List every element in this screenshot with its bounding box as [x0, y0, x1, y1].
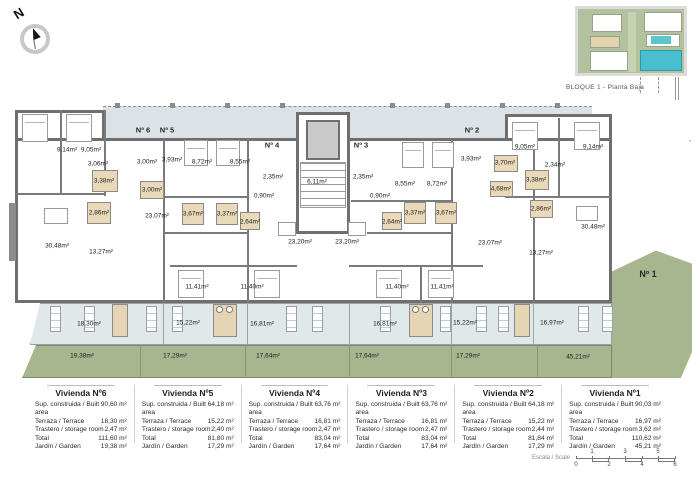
dining-table-symbol: [278, 222, 296, 236]
lounger-symbol: [380, 306, 391, 332]
terrace-area-label: 16,81m²: [250, 321, 274, 328]
table-row: Terraza / Terrace18,30 m²: [35, 418, 127, 426]
scale-tick: [642, 456, 643, 459]
table-row: Sup. construida / Built area90,03 m²: [569, 401, 661, 418]
lounger-symbol: [84, 306, 95, 332]
lounger-symbol: [312, 306, 323, 332]
map-leader-line: [678, 77, 679, 100]
unit-table-title: Vivienda Nº6: [35, 388, 127, 398]
garden-area-label: 17,29m²: [456, 353, 480, 360]
sink-icon: [412, 306, 419, 313]
room-area-label: 9,05m²: [515, 144, 535, 151]
row-label: Total: [249, 435, 263, 443]
unit-table-title: Vivienda Nº1: [569, 388, 661, 398]
table-row: Total83,04 m²: [249, 435, 341, 443]
room-area-label: 3,06m²: [88, 161, 108, 168]
unit-table-n3: Vivienda Nº3 Sup. construida / Built are…: [347, 385, 454, 443]
row-label: Total: [569, 435, 583, 443]
bloque-caption: BLOQUE 1 - Planta Baja: [566, 84, 644, 91]
row-value: 83,04 m²: [314, 435, 340, 443]
room-area-label: 3,67m²: [436, 210, 456, 217]
row-value: 2,40 m²: [211, 426, 233, 434]
row-label: Total: [142, 435, 156, 443]
room-area-label: 3,00m²: [137, 159, 157, 166]
room-area-label: 2,86m²: [89, 210, 109, 217]
room-area-label: 23,07m²: [145, 213, 169, 220]
room-area-label: 23,07m²: [478, 240, 502, 247]
room-area-label: 4,68m²: [491, 186, 511, 193]
unit-table-n2: Vivienda Nº2 Sup. construida / Built are…: [454, 385, 561, 443]
row-value: 64,18 m²: [528, 401, 554, 418]
row-value: 2,44 m²: [532, 426, 554, 434]
row-label: Jardín / Garden: [249, 443, 295, 451]
row-value: 2,47 m²: [318, 426, 340, 434]
partition-wall: [558, 118, 560, 196]
terrace-area-label: 16,81m²: [373, 321, 397, 328]
unit-label-n3: Nº 3: [354, 141, 368, 150]
room-area-label: 2,35m²: [353, 174, 373, 181]
row-label: Terraza / Terrace: [355, 418, 404, 426]
room-area-label: 8,55m²: [395, 181, 415, 188]
partition-wall: [15, 193, 105, 195]
table-row: Terraza / Terrace15,22 m²: [462, 418, 554, 426]
terrace-divider: [533, 303, 534, 345]
row-value: 15,22 m²: [208, 418, 234, 426]
bed-symbol: [66, 114, 92, 142]
table-row: Jardín / Garden17,64 m²: [249, 443, 341, 451]
storage-room: [112, 304, 128, 337]
row-label: Trastero / storage room: [462, 426, 531, 434]
row-value: 64,18 m²: [208, 401, 234, 418]
column-marker: [445, 103, 450, 108]
room-area-label: 9,14m²: [583, 144, 603, 151]
row-value: 16,81 m²: [421, 418, 447, 426]
garden-divider: [245, 345, 246, 378]
row-label: Total: [35, 435, 49, 443]
room-area-label: 11,40m²: [385, 284, 408, 291]
scale-label: Escala / Scale: [532, 455, 570, 461]
table-row: Total81,84 m²: [462, 435, 554, 443]
room-area-label: 2,64m²: [240, 219, 260, 226]
lounger-symbol: [146, 306, 157, 332]
lounger-symbol: [440, 306, 451, 332]
table-row: Terraza / Terrace15,22 m²: [142, 418, 234, 426]
lounger-symbol: [476, 306, 487, 332]
unit-table-title: Vivienda Nº4: [249, 388, 341, 398]
column-marker: [225, 103, 230, 108]
map-building: [644, 12, 682, 32]
room-area-label: 11,41m²: [185, 284, 208, 291]
unit-label-n4: Nº 4: [265, 141, 279, 150]
row-label: Jardín / Garden: [35, 443, 81, 451]
table-row: Total111,60 m²: [35, 435, 127, 443]
row-label: Sup. construida / Built area: [569, 401, 635, 418]
map-pool: [651, 36, 671, 44]
column-marker: [555, 103, 560, 108]
table-row: Sup. construida / Built area64,18 m²: [462, 401, 554, 418]
garden-area-label: 19,38m²: [70, 353, 94, 360]
column-marker: [170, 103, 175, 108]
bed-symbol: [402, 142, 424, 168]
terrace-area-label: 18,30m²: [77, 321, 101, 328]
room-area-label: 3,38m²: [526, 177, 546, 184]
room-area-label: 8,55m²: [230, 159, 250, 166]
row-value: 17,64 m²: [421, 443, 447, 451]
elevator: [306, 120, 340, 160]
scale-number: 1: [590, 449, 593, 455]
terrace-divider: [163, 303, 164, 345]
row-value: 16,81 m²: [314, 418, 340, 426]
partition-wall: [533, 138, 535, 303]
unit-table-n4: Vivienda Nº4 Sup. construida / Built are…: [241, 385, 348, 443]
room-area-label: 2,64m²: [382, 219, 402, 226]
garden-divider: [451, 345, 452, 378]
garden-area-label: 17,64m²: [355, 353, 379, 360]
unit-table-title: Vivienda Nº5: [142, 388, 234, 398]
unit-table-n1: Vivienda Nº1 Sup. construida / Built are…: [561, 385, 668, 443]
row-value: 63,76 m²: [421, 401, 447, 418]
scale-number: 3: [623, 449, 626, 455]
row-label: Terraza / Terrace: [462, 418, 511, 426]
floor-plan-sheet: N BLOQUE 1 - Planta Baja: [0, 0, 700, 495]
room-area-label: 9,05m²: [81, 147, 101, 154]
map-leader-line: [675, 77, 676, 100]
room-area-label: 3,93m²: [162, 157, 182, 164]
scale-number: 6: [673, 462, 676, 468]
map-highlighted-block: [640, 50, 682, 71]
unit-label-n2: Nº 2: [465, 126, 479, 135]
lounger-symbol: [50, 306, 61, 332]
partition-wall: [170, 265, 297, 267]
partition-wall: [349, 265, 483, 267]
garden-unit1: [612, 248, 692, 378]
row-label: Jardín / Garden: [462, 443, 508, 451]
terrace-divider: [451, 303, 452, 345]
room-area-label: 23,20m²: [288, 239, 312, 246]
room-area-label: 13,27m²: [529, 250, 553, 257]
row-value: 17,64 m²: [314, 443, 340, 451]
room-area-label: 3,70m²: [495, 160, 515, 167]
unit-table-title: Vivienda Nº3: [355, 388, 447, 398]
garden-strip: [22, 345, 612, 378]
row-label: Jardín / Garden: [355, 443, 401, 451]
row-value: 18,30 m²: [101, 418, 127, 426]
garden-divider: [140, 345, 141, 378]
lounger-symbol: [286, 306, 297, 332]
row-label: Sup. construida / Built area: [355, 401, 421, 418]
row-label: Trastero / storage room: [142, 426, 211, 434]
dining-table-symbol: [576, 206, 598, 221]
partition-wall: [505, 196, 612, 198]
row-label: Trastero / storage room: [249, 426, 318, 434]
garden-area-label: 45,21m²: [566, 354, 590, 361]
room-area-label: 8,72m²: [427, 181, 447, 188]
row-label: Trastero / storage room: [35, 426, 104, 434]
sink-icon: [226, 306, 233, 313]
partition-wall: [367, 232, 451, 234]
scale-bar: Escala / Scale 1 3 5 0 2 4 6: [532, 449, 688, 469]
partition-wall: [163, 196, 247, 198]
table-row: Total81,80 m²: [142, 435, 234, 443]
unit-label-n5: Nº 5: [160, 126, 174, 135]
lounger-symbol: [498, 306, 509, 332]
row-value: 2,47 m²: [104, 426, 126, 434]
garden-area-label: 17,64m²: [256, 353, 280, 360]
room-area-label: 30,48m²: [45, 243, 69, 250]
table-row: Terraza / Terrace16,81 m²: [249, 418, 341, 426]
garden-divider: [537, 345, 538, 378]
unit-table-title: Vivienda Nº2: [462, 388, 554, 398]
row-label: Jardín / Garden: [142, 443, 188, 451]
scale-number: 4: [640, 462, 643, 468]
room-area-label: 6,11m²: [307, 179, 327, 186]
map-path: [628, 12, 636, 72]
table-row: Trastero / storage room2,47 m²: [249, 426, 341, 434]
room-area-label: 3,37m²: [217, 211, 237, 218]
row-label: Terraza / Terrace: [142, 418, 191, 426]
room-area-label: 3,00m²: [142, 187, 162, 194]
row-value: 17,29 m²: [208, 443, 234, 451]
room-area-label: 0,90m²: [370, 193, 390, 200]
table-row: Total110,62 m²: [569, 435, 661, 443]
sink-icon: [216, 306, 223, 313]
row-label: Total: [462, 435, 476, 443]
unit-label-n1: Nº 1: [639, 269, 656, 279]
scale-number: 5: [656, 449, 659, 455]
column-marker: [280, 103, 285, 108]
row-label: Sup. construida / Built area: [462, 401, 528, 418]
table-row: Sup. construida / Built area63,76 m²: [355, 401, 447, 418]
room-area-label: 13,27m²: [89, 249, 113, 256]
row-value: 90,03 m²: [635, 401, 661, 418]
column-marker: [390, 103, 395, 108]
table-row: Trastero / storage room2,47 m²: [35, 426, 127, 434]
sink-icon: [422, 306, 429, 313]
table-row: Terraza / Terrace16,81 m²: [355, 418, 447, 426]
scale-tick: [675, 456, 676, 459]
bed-symbol: [432, 142, 454, 168]
garden-area-label: 17,29m²: [163, 353, 187, 360]
row-value: 15,22 m²: [528, 418, 554, 426]
row-label: Total: [355, 435, 369, 443]
row-value: 81,80 m²: [208, 435, 234, 443]
row-label: Terraza / Terrace: [35, 418, 84, 426]
room-area-label: 2,35m²: [263, 174, 283, 181]
row-label: Sup. construida / Built area: [249, 401, 315, 418]
row-label: Sup. construida / Built area: [35, 401, 101, 418]
room-area-label: 11,40m²: [240, 284, 263, 291]
table-row: Sup. construida / Built area64,18 m²: [142, 401, 234, 418]
row-value: 110,62 m²: [632, 435, 661, 443]
table-row: Trastero / storage room2,40 m²: [142, 426, 234, 434]
partition-wall: [420, 265, 422, 303]
north-label: N: [11, 5, 27, 23]
dining-table-symbol: [44, 208, 68, 224]
table-row: Trastero / storage room3,62 m²: [569, 426, 661, 434]
room-area-label: 23,20m²: [335, 239, 359, 246]
row-label: Trastero / storage room: [355, 426, 424, 434]
room-area-label: 3,93m²: [461, 156, 481, 163]
row-value: 2,47 m²: [425, 426, 447, 434]
table-row: Jardín / Garden17,64 m²: [355, 443, 447, 451]
map-leader-line: [658, 77, 659, 93]
terrace-area-label: 15,22m²: [176, 320, 200, 327]
table-row: Jardín / Garden19,38 m²: [35, 443, 127, 451]
row-value: 16,97 m²: [635, 418, 661, 426]
unit-table-n5: Vivienda Nº5 Sup. construida / Built are…: [134, 385, 241, 443]
scale-tick: [609, 456, 610, 459]
map-building: [590, 51, 628, 71]
column-marker: [115, 103, 120, 108]
table-row: Trastero / storage room2,47 m²: [355, 426, 447, 434]
room-area-label: 9,14m²: [57, 147, 77, 154]
scale-tick: [576, 456, 577, 459]
table-row: Jardín / Garden17,29 m²: [142, 443, 234, 451]
row-label: Terraza / Terrace: [569, 418, 618, 426]
row-label: Terraza / Terrace: [249, 418, 298, 426]
table-row: Terraza / Terrace16,97 m²: [569, 418, 661, 426]
storage-room: [514, 304, 530, 337]
partition-wall: [163, 232, 247, 234]
room-area-label: 11,41m²: [430, 284, 453, 291]
row-value: 63,76 m²: [314, 401, 340, 418]
row-value: 111,60 m²: [98, 435, 127, 443]
terrace-divider: [247, 303, 248, 345]
map-building: [592, 14, 622, 32]
column-marker: [500, 103, 505, 108]
table-row: Total83,04 m²: [355, 435, 447, 443]
room-area-label: 2,86m²: [531, 206, 551, 213]
map-building: [590, 36, 620, 48]
scale-number: 2: [607, 462, 610, 468]
patio-arc: [613, 140, 691, 246]
table-row: Sup. construida / Built area63,76 m²: [249, 401, 341, 418]
bed-symbol: [22, 114, 48, 142]
room-area-label: 3,38m²: [94, 178, 114, 185]
room-area-label: 0,90m²: [254, 193, 274, 200]
patio-curves: [613, 140, 691, 246]
scale-number: 0: [574, 462, 577, 468]
unit-area-tables: Vivienda Nº6 Sup. construida / Built are…: [28, 385, 668, 443]
garden-divider: [349, 345, 350, 378]
lounger-symbol: [578, 306, 589, 332]
room-area-label: 8,72m²: [192, 159, 212, 166]
site-location-map: [575, 6, 687, 76]
row-value: 19,38 m²: [101, 443, 127, 451]
room-area-label: 2,34m²: [545, 162, 565, 169]
wall-stub: [9, 203, 16, 261]
table-row: Trastero / storage room2,44 m²: [462, 426, 554, 434]
room-area-label: 3,67m²: [183, 211, 203, 218]
row-value: 81,84 m²: [528, 435, 554, 443]
row-label: Sup. construida / Built area: [142, 401, 208, 418]
row-value: 90,60 m²: [101, 401, 127, 418]
dining-table-symbol: [348, 222, 366, 236]
row-value: 3,62 m²: [639, 426, 661, 434]
terrace-area-label: 16,97m²: [540, 320, 564, 327]
row-value: 83,04 m²: [421, 435, 447, 443]
lounger-symbol: [602, 306, 613, 332]
unit-table-n6: Vivienda Nº6 Sup. construida / Built are…: [28, 385, 134, 443]
room-area-label: 3,37m²: [405, 210, 425, 217]
terrace-divider: [349, 303, 350, 345]
room-area-label: 30,48m²: [581, 224, 605, 231]
terrace-area-label: 15,22m²: [453, 320, 477, 327]
unit-label-n6: Nº 6: [136, 126, 150, 135]
row-label: Trastero / storage room: [569, 426, 638, 434]
table-row: Sup. construida / Built area90,60 m²: [35, 401, 127, 418]
